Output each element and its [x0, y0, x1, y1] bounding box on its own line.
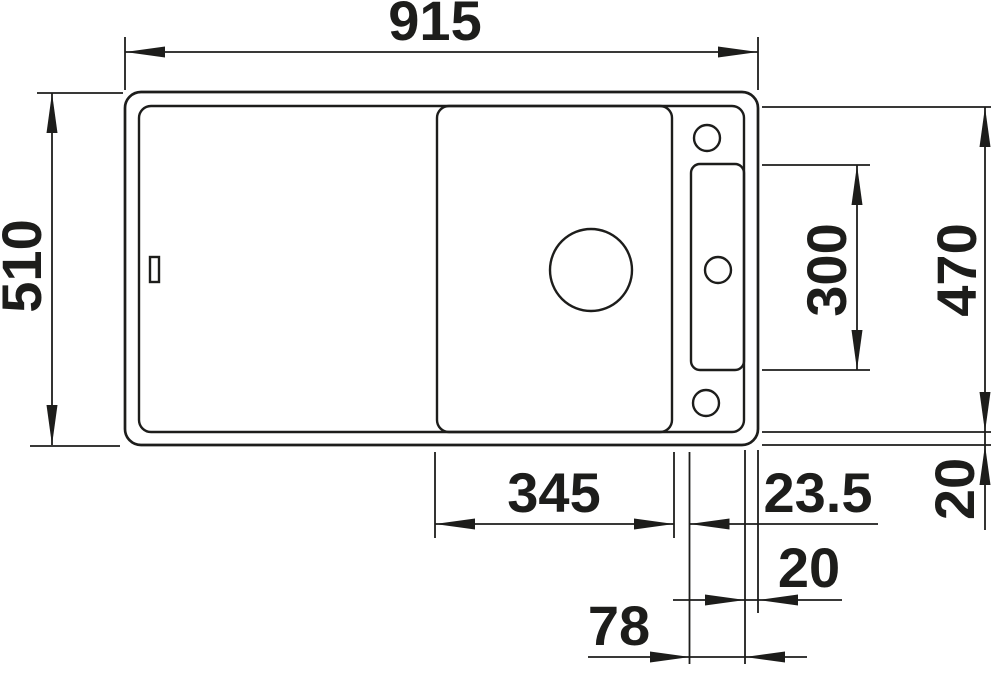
dim-label-divider-width: 23.5: [764, 461, 873, 524]
arrowhead-right-tip: [705, 595, 745, 606]
dim-label-overall-depth: 510: [0, 219, 53, 312]
dim-label-board-section-width: 345: [507, 461, 600, 524]
dimension-overall-depth: 510: [0, 93, 123, 446]
sink-outer-outline: [125, 92, 758, 445]
arrowhead-right-tip: [650, 652, 690, 663]
overflow-slot: [150, 257, 159, 282]
tap-hole-bottom: [693, 390, 719, 416]
dim-label-rim-width-bottom: 20: [778, 536, 840, 599]
arrowhead-top: [852, 165, 863, 205]
arrowhead-right: [634, 519, 674, 530]
tap-ledge-panel: [691, 164, 744, 370]
sink-inner-rim: [139, 106, 744, 432]
sink-technical-drawing-canvas: 915 510 300 470 20: [0, 0, 1000, 673]
arrowhead-bottom: [852, 330, 863, 370]
cutting-board-section: [437, 106, 672, 432]
dim-label-rim-width-right: 20: [923, 458, 986, 520]
dimension-ledge-length: 300: [762, 165, 870, 370]
tap-hole-middle: [705, 257, 731, 283]
dim-label-overall-width: 915: [388, 0, 481, 52]
technical-drawing-page: 915 510 300 470 20: [0, 0, 1000, 673]
dimension-overall-width: 915: [125, 0, 758, 90]
tap-hole-top: [694, 125, 720, 151]
arrowhead-bottom: [980, 392, 991, 432]
arrowhead-left: [690, 519, 730, 530]
arrowhead-left-tip: [745, 652, 785, 663]
dim-label-ledge-length: 300: [795, 223, 858, 316]
dim-label-cutout-depth: 470: [925, 223, 988, 316]
dimension-divider-width: 23.5: [690, 461, 879, 530]
dimension-ledge-width: 78: [588, 594, 807, 663]
arrowhead-top: [47, 93, 58, 133]
arrowhead-left: [435, 519, 475, 530]
arrowhead-top: [980, 107, 991, 147]
arrowhead-right: [718, 47, 758, 58]
arrowhead-left: [125, 47, 165, 58]
dimension-board-section-width: 345: [435, 461, 674, 530]
sink-body: [125, 92, 758, 445]
dim-label-ledge-width: 78: [588, 594, 650, 657]
drain-opening: [550, 229, 632, 311]
arrowhead-bottom: [47, 405, 58, 445]
